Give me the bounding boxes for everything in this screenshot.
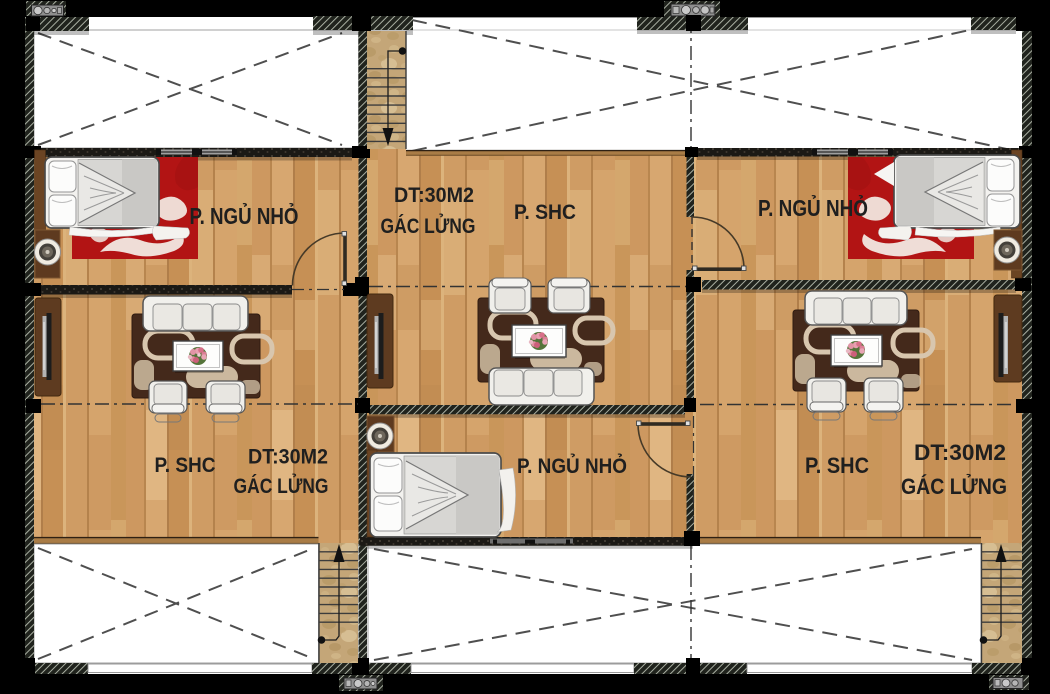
svg-text:DT:30M2: DT:30M2 (248, 446, 328, 469)
svg-text:P. SHC: P. SHC (805, 453, 869, 478)
svg-text:P. SHC: P. SHC (514, 201, 576, 224)
svg-text:P. NGỦ NHỎ: P. NGỦ NHỎ (517, 454, 627, 478)
svg-text:DT:30M2: DT:30M2 (394, 184, 474, 207)
svg-text:GÁC LỬNG: GÁC LỬNG (234, 474, 329, 498)
svg-text:P. SHC: P. SHC (155, 454, 216, 477)
svg-text:DT:30M2: DT:30M2 (914, 440, 1006, 465)
svg-text:GÁC LỬNG: GÁC LỬNG (901, 474, 1007, 499)
svg-text:GÁC LỬNG: GÁC LỬNG (381, 214, 476, 238)
svg-text:P. NGỦ NHỎ: P. NGỦ NHỎ (758, 193, 868, 221)
svg-text:P. NGỦ NHỎ: P. NGỦ NHỎ (190, 201, 299, 229)
